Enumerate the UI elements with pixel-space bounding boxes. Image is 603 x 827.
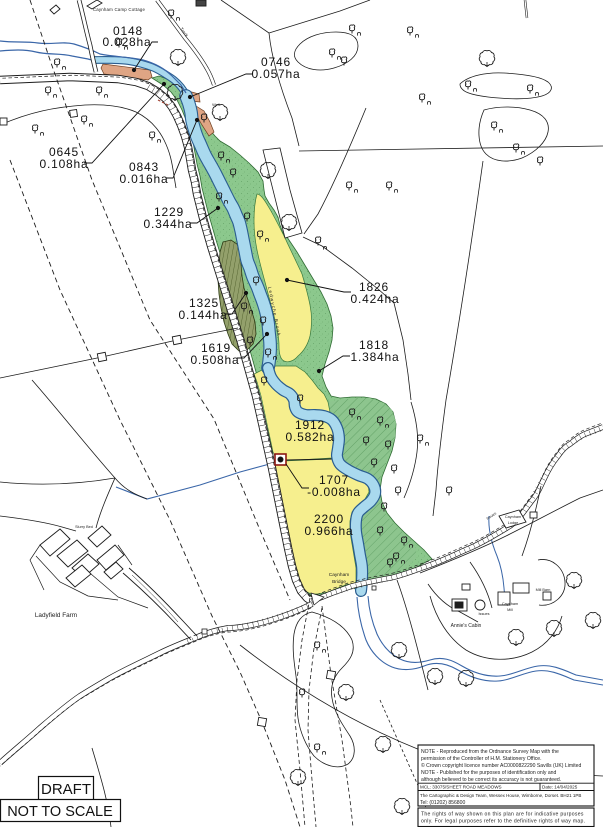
svg-text:although believed to be correc: although believed to be correct its accu… <box>421 777 561 783</box>
svg-text:NOTE - Published for the purpo: NOTE - Published for the purposes of ide… <box>421 770 557 776</box>
svg-text:Well: Well <box>212 102 220 107</box>
svg-text:Annie's Cabin: Annie's Cabin <box>451 623 482 629</box>
svg-text:0.344ha: 0.344ha <box>144 217 193 231</box>
svg-text:NOTE - Reproduced from the Ord: NOTE - Reproduced from the Ordnance Surv… <box>421 749 559 755</box>
svg-text:only. For legal purposes refer: only. For legal purposes refer to the de… <box>421 819 585 825</box>
svg-text:permission of the Controller o: permission of the Controller of H.M. Sta… <box>421 756 542 762</box>
svg-text:NOT TO SCALE: NOT TO SCALE <box>7 804 113 820</box>
svg-text:Slurry Bed: Slurry Bed <box>75 525 93 529</box>
svg-text:Bridge: Bridge <box>332 579 346 585</box>
svg-text:0.144ha: 0.144ha <box>179 308 228 322</box>
svg-text:Date: 14/04/2025: Date: 14/04/2025 <box>542 785 578 790</box>
svg-text:0.108ha: 0.108ha <box>40 157 89 171</box>
svg-text:Ladyfield Farm: Ladyfield Farm <box>35 612 77 619</box>
svg-text:Mill Barn: Mill Barn <box>536 588 551 592</box>
svg-text:0.028ha: 0.028ha <box>103 35 152 49</box>
svg-text:DRAFT: DRAFT <box>41 781 91 798</box>
svg-text:The Cartographic & Design Team: The Cartographic & Design Team, Wessex H… <box>420 793 581 798</box>
svg-text:0.966ha: 0.966ha <box>305 524 354 538</box>
svg-text:Tel: (01202) 856800: Tel: (01202) 856800 <box>420 800 465 806</box>
svg-text:Caynham: Caynham <box>505 515 521 519</box>
svg-text:Caynham: Caynham <box>502 602 518 606</box>
svg-text:1.384ha: 1.384ha <box>351 350 400 364</box>
svg-text:Mill: Mill <box>507 608 513 612</box>
svg-text:0.424ha: 0.424ha <box>351 292 400 306</box>
svg-text:-0.008ha: -0.008ha <box>307 485 361 499</box>
svg-text:0.582ha: 0.582ha <box>286 430 335 444</box>
svg-text:0.016ha: 0.016ha <box>120 172 169 186</box>
svg-text:0.057ha: 0.057ha <box>252 67 301 81</box>
svg-text:© Crown copyright licence numb: © Crown copyright licence number AC00008… <box>421 762 581 769</box>
svg-text:The rights of way shown on thi: The rights of way shown on this plan are… <box>421 812 584 818</box>
svg-text:Caynham: Caynham <box>329 572 350 578</box>
svg-text:Lodge: Lodge <box>508 521 519 525</box>
svg-text:0.508ha: 0.508ha <box>191 353 240 367</box>
svg-text:MCL: 33075/SHEET ROAD MEADOWS: MCL: 33075/SHEET ROAD MEADOWS <box>420 785 502 790</box>
svg-text:Issues: Issues <box>479 612 490 616</box>
svg-text:Caynham Camp Cottage: Caynham Camp Cottage <box>93 7 146 12</box>
